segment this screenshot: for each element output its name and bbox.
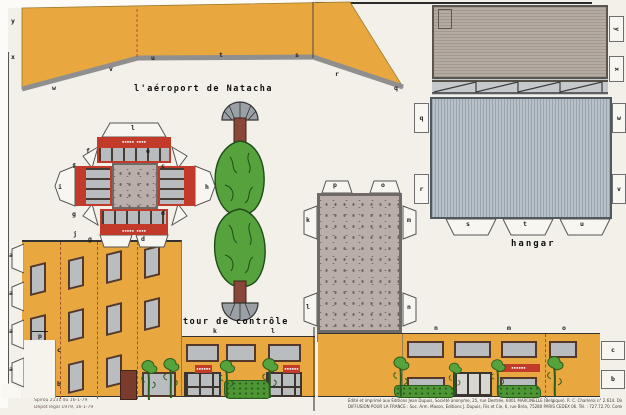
tab-letter: f — [86, 148, 90, 155]
strip-right-tab-b: b — [601, 370, 625, 389]
facade-window — [68, 256, 84, 290]
tower-red-band-left — [75, 166, 84, 206]
tower-windows-bottom — [100, 209, 168, 226]
tab-letter: x — [613, 67, 620, 71]
edge-mark: m — [507, 325, 511, 332]
hangar-wall-piece — [430, 97, 612, 219]
tab-letter: f — [72, 163, 76, 170]
tab-letter: w — [617, 115, 621, 122]
edge-mark: c — [57, 347, 61, 354]
tab-letter: t — [219, 52, 223, 59]
tab-letter: q — [394, 85, 398, 92]
tab-letter: r — [335, 71, 339, 78]
ivy-plant — [543, 354, 567, 397]
ivy-plant — [160, 356, 182, 398]
tower-windows-top — [97, 146, 171, 163]
strip-window — [454, 341, 491, 358]
tab-letter: p — [333, 182, 337, 189]
tab-letter: y — [11, 18, 15, 25]
tower-caption: tour de contrôle — [183, 318, 289, 327]
tab-letter: b — [611, 376, 615, 383]
hangar-tab-w: w — [612, 103, 626, 133]
strip-window — [407, 341, 444, 358]
ivy-plant — [446, 361, 464, 395]
tree-foliage-lower — [215, 209, 266, 287]
facade-window — [144, 297, 160, 331]
tab-letter: u — [580, 221, 584, 228]
colophon-right-line1: Édité et imprimé aux Éditions Jean Dupui… — [348, 398, 622, 403]
hangar-caption: hangar — [511, 240, 556, 249]
ivy-plant — [216, 358, 238, 398]
roof-tab-x: x — [609, 56, 624, 82]
tab-letter: o — [381, 182, 385, 189]
tab-letter: d — [141, 236, 145, 243]
edge-mark: k — [213, 328, 217, 335]
facade-window — [68, 360, 84, 394]
facade-window — [106, 302, 122, 336]
tab-letter: l — [306, 304, 310, 311]
facade-window — [106, 250, 122, 284]
ivy-plant — [259, 356, 281, 398]
ivy-plant — [138, 358, 160, 400]
colophon-left-line2: Dépôt légal 1979, 16-1-79 — [34, 405, 134, 410]
strip-window — [501, 341, 537, 358]
edge-mark: p — [38, 333, 42, 340]
tree-trunk-top — [234, 118, 246, 143]
tab-letter: v — [109, 66, 113, 73]
tab-letter: m — [407, 217, 411, 224]
edge-mark: n — [434, 325, 438, 332]
tab-letter: d — [161, 210, 165, 217]
centerfold-line-top — [312, 2, 314, 58]
tower-windows-left — [84, 166, 112, 206]
ivy-plant — [390, 354, 412, 397]
fold-line — [60, 242, 61, 399]
tab-letter: c — [161, 163, 165, 170]
tab-letter: u — [151, 55, 155, 62]
roof-truss-band — [432, 79, 608, 95]
ivy-plant — [488, 357, 508, 396]
colophon-left-line1: Spirou 2131 du 16-1-79 — [34, 398, 134, 403]
facade-window — [30, 262, 46, 296]
edge-mark: o — [562, 325, 566, 332]
papercraft-sheet: y x w v u t s r q l'aéroport de Natacha … — [0, 0, 626, 415]
tower-windows-right — [158, 166, 186, 206]
facade-window — [144, 245, 160, 279]
shop-sign: ▪▪▪▪▪▪ — [195, 365, 212, 373]
tab-letter: g — [72, 211, 76, 218]
hangar-roof-piece — [432, 5, 608, 79]
airport-title: l'aéroport de Natacha — [134, 85, 273, 94]
edge-mark: b — [57, 381, 61, 388]
tab-letter: i — [58, 184, 62, 191]
tab-letter: g — [88, 236, 92, 243]
facade-window — [68, 308, 84, 342]
terminal-roof-piece — [317, 193, 402, 333]
tab-letter: w — [52, 85, 56, 92]
tab-letter: y — [613, 27, 620, 31]
hangar-tab-v: v — [612, 174, 626, 204]
facade-door — [120, 370, 137, 400]
tab-letter: c — [611, 347, 615, 354]
tab-letter: t — [523, 221, 527, 228]
tab-letter: a — [9, 252, 13, 259]
strip-right-tab-c: c — [601, 341, 625, 360]
strip-window — [186, 344, 219, 362]
facade-cutout — [22, 340, 56, 398]
tab-letter: n — [407, 304, 411, 311]
tab-letter: e — [146, 148, 150, 155]
tower-red-band-right — [186, 166, 195, 206]
tower-red-band-top: ▪▪▪▪▪ ▪▪▪▪ — [97, 137, 171, 146]
tower-red-band-bottom: ▪▪▪▪▪ ▪▪▪▪ — [100, 226, 168, 235]
tree-foliage-upper — [215, 141, 264, 215]
tab-letter: l — [131, 125, 135, 132]
tab-letter: q — [420, 115, 424, 122]
tree-trunk-bottom — [234, 281, 246, 305]
tower-roof-square — [112, 163, 158, 209]
colophon-right-line2: DIFFUSION POUR LA FRANCE : Soc. Arm. Mas… — [348, 404, 622, 409]
tab-letter: a — [9, 328, 13, 335]
tab-letter: s — [295, 52, 299, 59]
centerfold-line — [313, 327, 315, 411]
tab-letter: v — [617, 186, 621, 193]
tab-letter: h — [205, 184, 209, 191]
tab-letter: x — [11, 54, 15, 61]
shop-sign: ▪▪▪▪▪▪ — [283, 365, 300, 373]
roof-chimney-hole — [438, 9, 452, 29]
roof-tab-y: y — [609, 16, 624, 42]
tab-letter: k — [306, 217, 310, 224]
tab-letter: s — [466, 221, 470, 228]
edge-mark: l — [271, 328, 275, 335]
tab-letter: a — [9, 366, 13, 373]
hangar-tab-q: q — [414, 103, 429, 133]
fold-line — [97, 242, 98, 399]
tab-letter: a — [9, 290, 13, 297]
